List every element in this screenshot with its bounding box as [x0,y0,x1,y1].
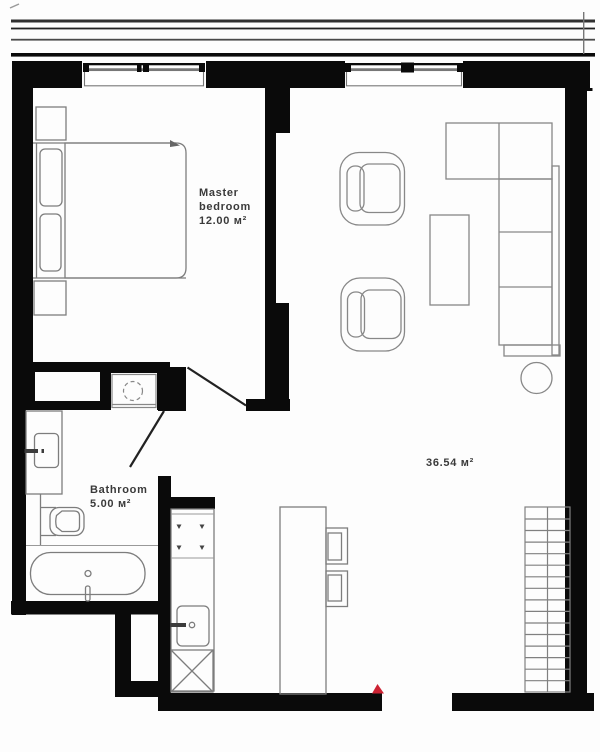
svg-text:36.54 м²: 36.54 м² [426,457,474,469]
svg-text:5.00 м²: 5.00 м² [90,498,131,510]
svg-text:Bathroom: Bathroom [90,484,148,496]
svg-text:Master: Master [199,187,239,199]
svg-text:bedroom: bedroom [199,201,251,213]
svg-text:12.00 м²: 12.00 м² [199,215,247,227]
